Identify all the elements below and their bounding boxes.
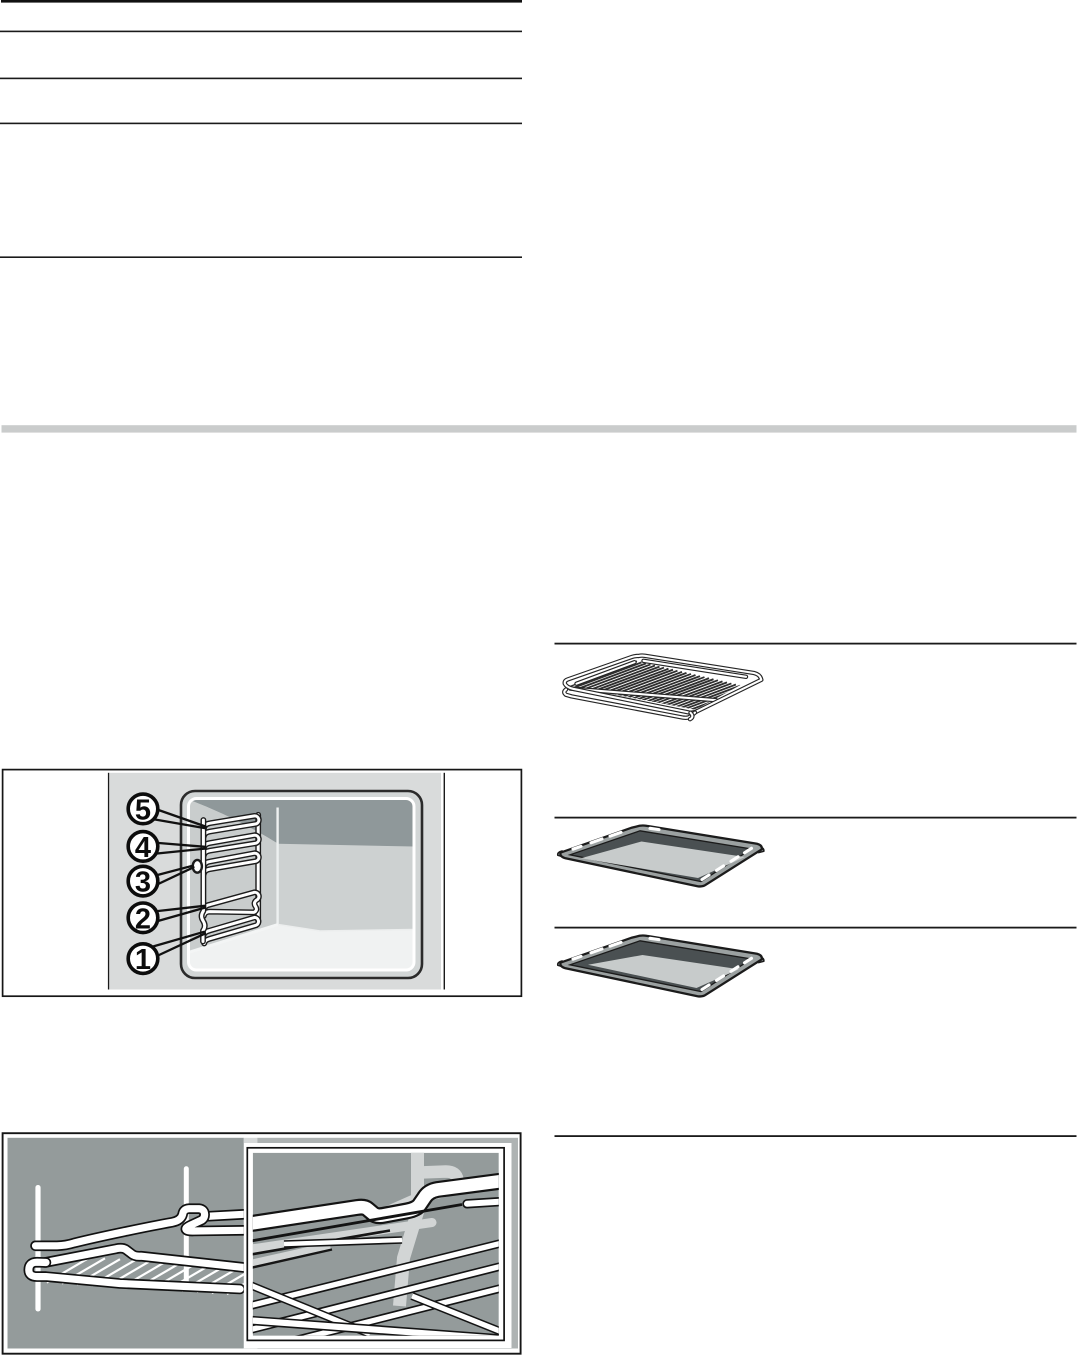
svg-text:1: 1	[135, 944, 151, 976]
svg-text:4: 4	[135, 832, 151, 864]
svg-text:5: 5	[135, 795, 151, 827]
svg-text:2: 2	[135, 903, 151, 935]
svg-text:3: 3	[135, 867, 151, 899]
